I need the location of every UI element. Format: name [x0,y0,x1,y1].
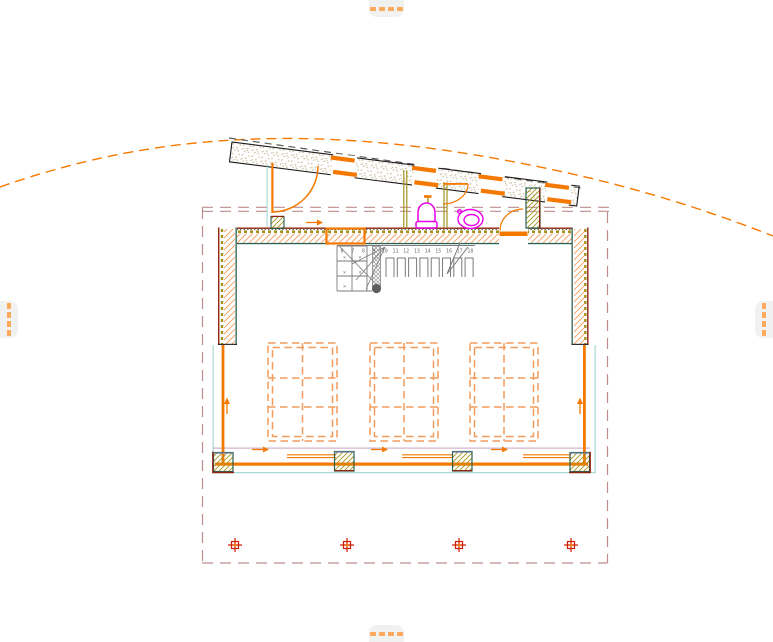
stair-tread-numbers: 6 7 8 9 10 11 12 13 14 15 16 17 18 [340,249,473,255]
svg-text:13: 13 [414,249,420,255]
pan-handle-left[interactable] [0,301,18,338]
svg-text:×: × [358,270,361,276]
svg-text:6: 6 [340,249,343,255]
facade-pier[interactable] [453,452,473,472]
drag-dash-icon [388,632,394,636]
window-symbol[interactable] [410,163,441,189]
svg-text:16: 16 [446,249,452,255]
svg-text:10: 10 [382,249,388,255]
facade-pier[interactable] [213,452,234,473]
entry-door-jamb-pier[interactable] [271,216,284,229]
drag-dash-icon [388,7,394,11]
floor-plan-drawing: 6 7 8 9 10 11 12 13 14 15 16 17 18 × × ×… [0,0,773,642]
drag-dash-icon [397,632,403,636]
survey-marker[interactable] [452,538,466,552]
drawing-canvas[interactable]: 6 7 8 9 10 11 12 13 14 15 16 17 18 × × ×… [0,0,773,642]
svg-text:14: 14 [425,249,431,255]
toilet-fixture[interactable] [416,203,437,228]
window-symbol[interactable] [328,153,359,179]
skylight-symbol[interactable] [268,343,337,441]
facade-pier[interactable] [335,452,355,472]
drag-dash-icon [7,330,12,336]
pan-handle-right[interactable] [755,301,773,338]
svg-text:15: 15 [435,249,441,255]
window-symbol[interactable] [543,180,574,206]
pan-handle-top[interactable] [369,0,404,17]
svg-text:11: 11 [392,249,398,255]
staircase[interactable]: 6 7 8 9 10 11 12 13 14 15 16 17 18 × × ×… [337,243,475,293]
drag-dash-icon [370,632,376,636]
eave-boundary-dashed-rect[interactable] [202,207,612,563]
drag-dash-icon [370,7,376,11]
survey-marker[interactable] [564,538,578,552]
drag-dash-icon [762,312,767,318]
drag-dash-icon [762,330,767,336]
svg-text:9: 9 [373,249,376,255]
svg-text:×: × [358,255,361,261]
drag-dash-icon [397,7,403,11]
svg-text:8: 8 [362,249,365,255]
skylight-symbol[interactable] [470,343,538,441]
svg-text:12: 12 [403,249,409,255]
pan-handle-bottom[interactable] [369,625,404,642]
drag-dash-icon [379,632,385,636]
window-symbol[interactable] [476,172,507,198]
drag-dash-icon [7,303,12,309]
svg-text:18: 18 [467,249,473,255]
facade-pier[interactable] [569,452,590,473]
drag-dash-icon [7,321,12,327]
survey-marker[interactable] [228,538,242,552]
interior-horizontal-wall[interactable] [218,227,588,246]
svg-text:×: × [343,284,346,290]
drag-dash-icon [762,303,767,309]
svg-text:×: × [343,255,346,261]
svg-text:×: × [343,270,346,276]
bidet-fixture[interactable] [458,210,483,229]
svg-text:7: 7 [351,249,354,255]
left-exterior-wall[interactable] [218,228,237,346]
drag-dash-icon [762,321,767,327]
survey-marker[interactable] [340,538,354,552]
svg-text:17: 17 [457,249,463,255]
drag-dash-icon [7,312,12,318]
right-exterior-wall[interactable] [526,188,589,345]
roof-overhang-curve[interactable] [0,138,773,236]
drag-dash-icon [379,7,385,11]
skylight-symbol[interactable] [370,343,438,441]
wall-jamb-pier[interactable] [526,188,540,228]
